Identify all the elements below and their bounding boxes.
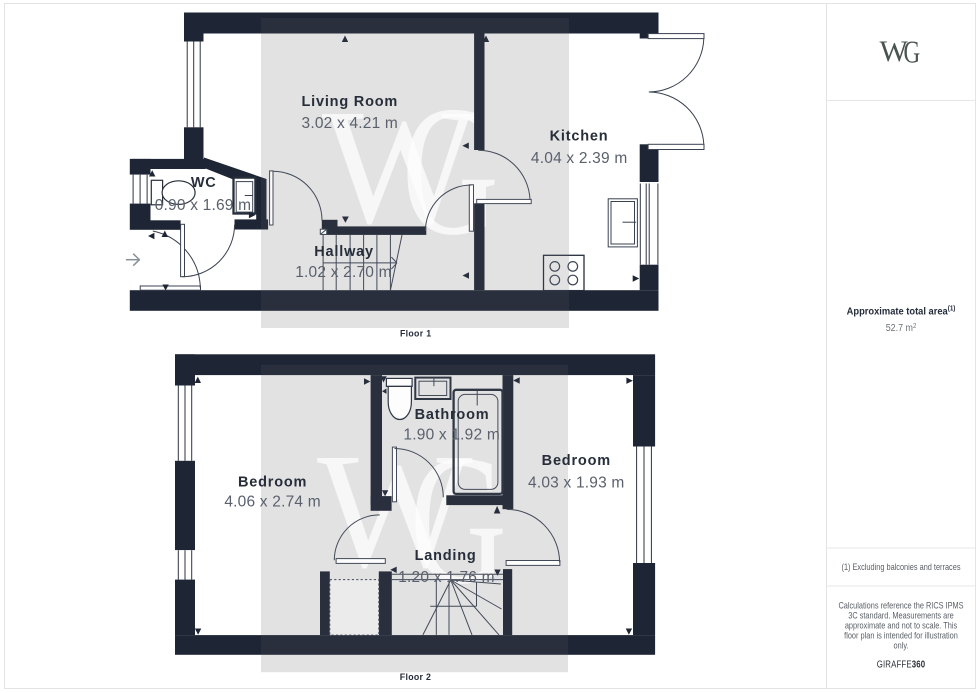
svg-text:3.02 x 4.21 m: 3.02 x 4.21 m [302,115,399,132]
svg-text:Floor 2: Floor 2 [400,672,431,682]
svg-text:Approximate total area(1): Approximate total area(1) [847,305,956,317]
svg-text:Bathroom: Bathroom [415,407,490,423]
svg-text:WC: WC [191,175,217,191]
svg-text:52.7 m2: 52.7 m2 [886,322,917,334]
svg-text:Landing: Landing [415,548,477,564]
svg-text:Kitchen: Kitchen [550,129,609,145]
svg-text:only.: only. [893,639,908,650]
svg-text:Living Room: Living Room [301,94,398,110]
svg-text:4.03 x 1.93 m: 4.03 x 1.93 m [528,475,625,492]
svg-text:0.90 x 1.69 m: 0.90 x 1.69 m [155,197,252,214]
svg-text:Floor 1: Floor 1 [400,328,431,338]
svg-text:GIRAFFE360: GIRAFFE360 [877,658,926,669]
svg-text:Hallway: Hallway [314,244,374,260]
svg-text:1.20 x 1.76 m: 1.20 x 1.76 m [398,569,495,586]
svg-text:(1) Excluding balconies and te: (1) Excluding balconies and terraces [841,561,960,572]
svg-text:1.90 x 1.92 m: 1.90 x 1.92 m [403,426,500,443]
svg-text:1.02 x 2.70 m: 1.02 x 2.70 m [295,264,392,281]
svg-text:Bedroom: Bedroom [238,474,307,490]
svg-text:4.04 x 2.39 m: 4.04 x 2.39 m [531,150,628,167]
svg-text:Bedroom: Bedroom [542,453,611,469]
svg-text:4.06 x 2.74 m: 4.06 x 2.74 m [224,493,321,510]
svg-text:G: G [904,35,921,71]
